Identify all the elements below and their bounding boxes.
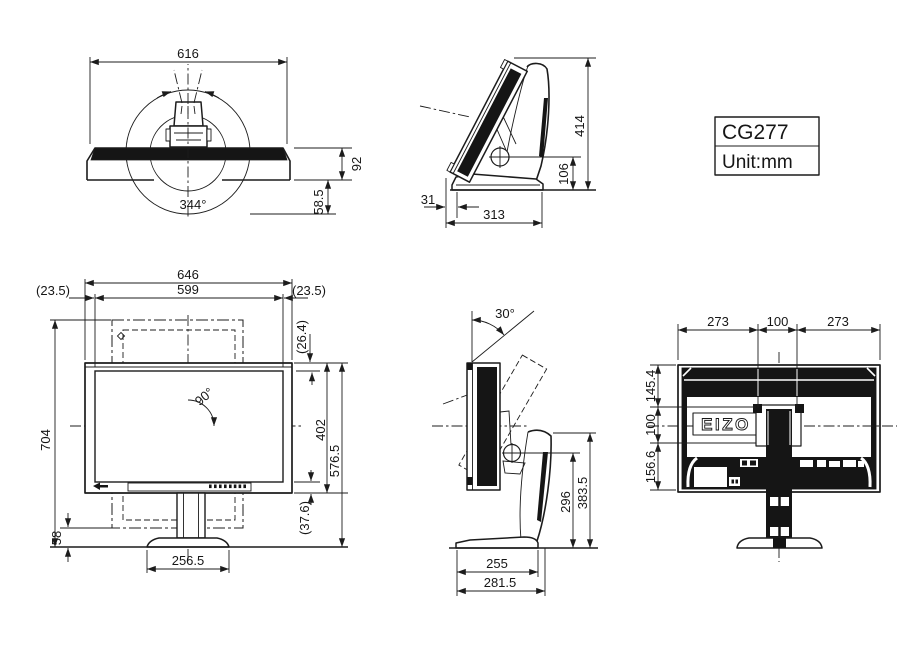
dim-label: (37.6)	[297, 501, 312, 535]
dim-label: 58.5	[311, 189, 326, 214]
dim-label: 256.5	[172, 553, 205, 568]
dim-base-extent: 58.5	[250, 180, 336, 215]
dim-label: 145.4	[643, 370, 658, 403]
dim-label: 281.5	[484, 575, 517, 590]
dim-total-width: 646	[85, 267, 292, 360]
stand-rear	[528, 430, 551, 541]
dim-label: 100	[767, 314, 789, 329]
dim-label: 273	[827, 314, 849, 329]
dim-label: 576.5	[327, 445, 342, 478]
dim-label: 100	[643, 414, 658, 436]
title-block: CG277 Unit:mm	[715, 117, 819, 175]
tilted-panel	[447, 60, 527, 183]
hinge-reference-line	[420, 106, 470, 117]
dim-label: 402	[313, 419, 328, 441]
rear-view: EIZO	[643, 314, 897, 562]
dim-stand-top-height: 383.5	[553, 433, 596, 548]
dimension-drawing: 344° 616 92 58.5	[0, 0, 900, 667]
top-band	[682, 368, 876, 397]
reference-diamond	[117, 332, 124, 339]
dim-label: (23.5)	[292, 283, 326, 298]
stand-hub-upper	[174, 102, 203, 126]
dim-depth: 313	[446, 192, 542, 228]
stand-column	[177, 493, 205, 538]
stand-front	[520, 432, 528, 540]
dim-label: 296	[558, 491, 573, 513]
dim-label: 313	[483, 207, 505, 222]
dim-label: 383.5	[575, 477, 590, 510]
dim-label: (26.4)	[294, 320, 309, 354]
dim-label: (23.5)	[36, 283, 70, 298]
dim-label: 599	[177, 282, 199, 297]
dim-label: 106	[556, 163, 571, 185]
dim-label: 255	[486, 556, 508, 571]
dim-label: 704	[38, 429, 53, 451]
brand-logo: EIZO	[701, 415, 751, 434]
dim-top-thickness: 92	[294, 148, 364, 180]
dim-height: 414	[514, 58, 596, 190]
dim-top-bezel: (26.4)	[294, 320, 348, 385]
dim-label: 31	[421, 192, 435, 207]
model-label: CG277	[722, 121, 789, 144]
unit-label: Unit:mm	[722, 152, 793, 173]
dim-margin-right: (23.5)	[284, 283, 326, 298]
front-view: 90° 646 599 (23.5) (23.5) (26.4)	[36, 267, 348, 573]
dim-bottom-bezel: (37.6)	[294, 470, 320, 535]
tilt-angle-label: 30°	[495, 306, 515, 321]
dim-top-height: 576.5	[327, 363, 342, 547]
dim-label: 616	[177, 46, 199, 61]
screen-edge-strip	[91, 148, 287, 160]
dim-label: 273	[707, 314, 729, 329]
side-view: 30° 296 383.5 255	[432, 306, 598, 596]
screen	[95, 371, 283, 482]
base	[456, 537, 538, 548]
top-view: 344° 616 92 58.5	[87, 46, 364, 219]
dim-portrait-clearance: 58	[49, 513, 112, 562]
stand-hub-lower	[170, 126, 207, 147]
swivel-angle-label: 344°	[180, 197, 207, 212]
base	[147, 538, 229, 547]
swivel-fan-lines	[174, 64, 202, 104]
tilt-arc	[472, 320, 504, 335]
tilt-side-view: 414 106 31 313	[420, 58, 596, 228]
dim-label: 156.6	[643, 451, 658, 484]
dim-label: 92	[349, 157, 364, 171]
dim-label: 58	[49, 531, 64, 545]
dim-label: 414	[572, 115, 587, 137]
dim-label: 646	[177, 267, 199, 282]
dim-base-width: 256.5	[147, 550, 229, 573]
